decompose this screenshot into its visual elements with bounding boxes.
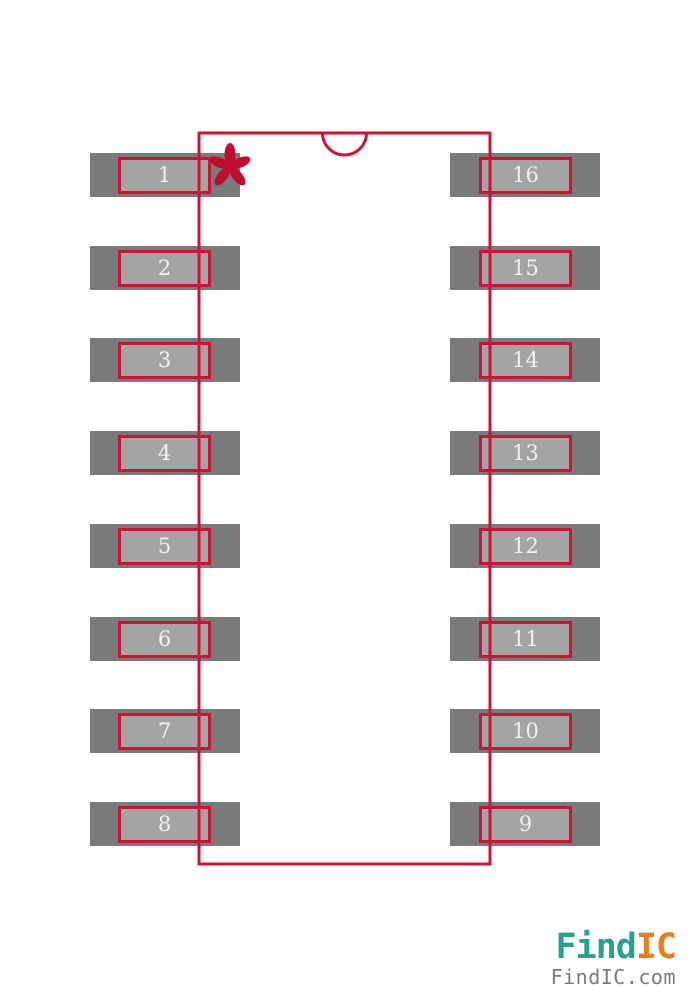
orientation-notch-icon [323,133,367,155]
pad-pin-9: 9 [450,802,600,846]
pad-pin-1: 1 [90,153,240,197]
logo-ic: IC [636,927,676,967]
silkscreen-overlay [0,0,690,1000]
pad-pin-14: 14 [450,338,600,382]
pin-number: 16 [512,165,539,186]
pad-pin-4: 4 [90,431,240,475]
pin-number: 7 [158,721,171,742]
pad-inner-rect: 1 [118,157,211,194]
pin-number: 2 [158,258,171,279]
pad-pin-10: 10 [450,709,600,753]
pad-inner-rect: 5 [118,528,211,565]
pad-inner-rect: 2 [118,250,211,287]
footprint-viewer-canvas: 1 2 3 4 5 6 7 8 16 [0,0,690,1000]
pad-inner-rect: 3 [118,342,211,379]
pad-pin-15: 15 [450,246,600,290]
pad-inner-rect: 16 [479,157,572,194]
pad-inner-rect: 8 [118,806,211,843]
pad-inner-rect: 4 [118,435,211,472]
pin-number: 5 [158,536,171,557]
pad-inner-rect: 10 [479,713,572,750]
pin-number: 12 [512,536,539,557]
pin-number: 9 [519,814,532,835]
pad-pin-7: 7 [90,709,240,753]
package-body-outline [199,133,490,864]
pad-pin-5: 5 [90,524,240,568]
pad-pin-11: 11 [450,617,600,661]
pad-pin-13: 13 [450,431,600,475]
pad-pin-12: 12 [450,524,600,568]
logo-find: Find [556,927,636,967]
pad-pin-3: 3 [90,338,240,382]
findic-logo[interactable]: FindIC FindIC.com [551,930,676,987]
pin-number: 3 [158,350,171,371]
pad-inner-rect: 12 [479,528,572,565]
pin-number: 13 [512,443,539,464]
pin-number: 15 [512,258,539,279]
pin-number: 8 [158,814,171,835]
findic-site-url: FindIC.com [551,967,676,987]
pad-inner-rect: 9 [479,806,572,843]
pad-inner-rect: 7 [118,713,211,750]
pad-inner-rect: 11 [479,621,572,658]
pad-pin-2: 2 [90,246,240,290]
pad-pin-8: 8 [90,802,240,846]
pin-number: 1 [158,165,171,186]
pad-inner-rect: 15 [479,250,572,287]
pin-number: 6 [158,629,171,650]
pin-number: 10 [512,721,539,742]
pad-inner-rect: 6 [118,621,211,658]
findic-logo-text: FindIC [551,930,676,965]
pad-inner-rect: 14 [479,342,572,379]
pin-number: 14 [512,350,539,371]
pin-number: 4 [158,443,171,464]
pad-pin-6: 6 [90,617,240,661]
pad-pin-16: 16 [450,153,600,197]
pad-inner-rect: 13 [479,435,572,472]
pin-number: 11 [512,629,539,650]
